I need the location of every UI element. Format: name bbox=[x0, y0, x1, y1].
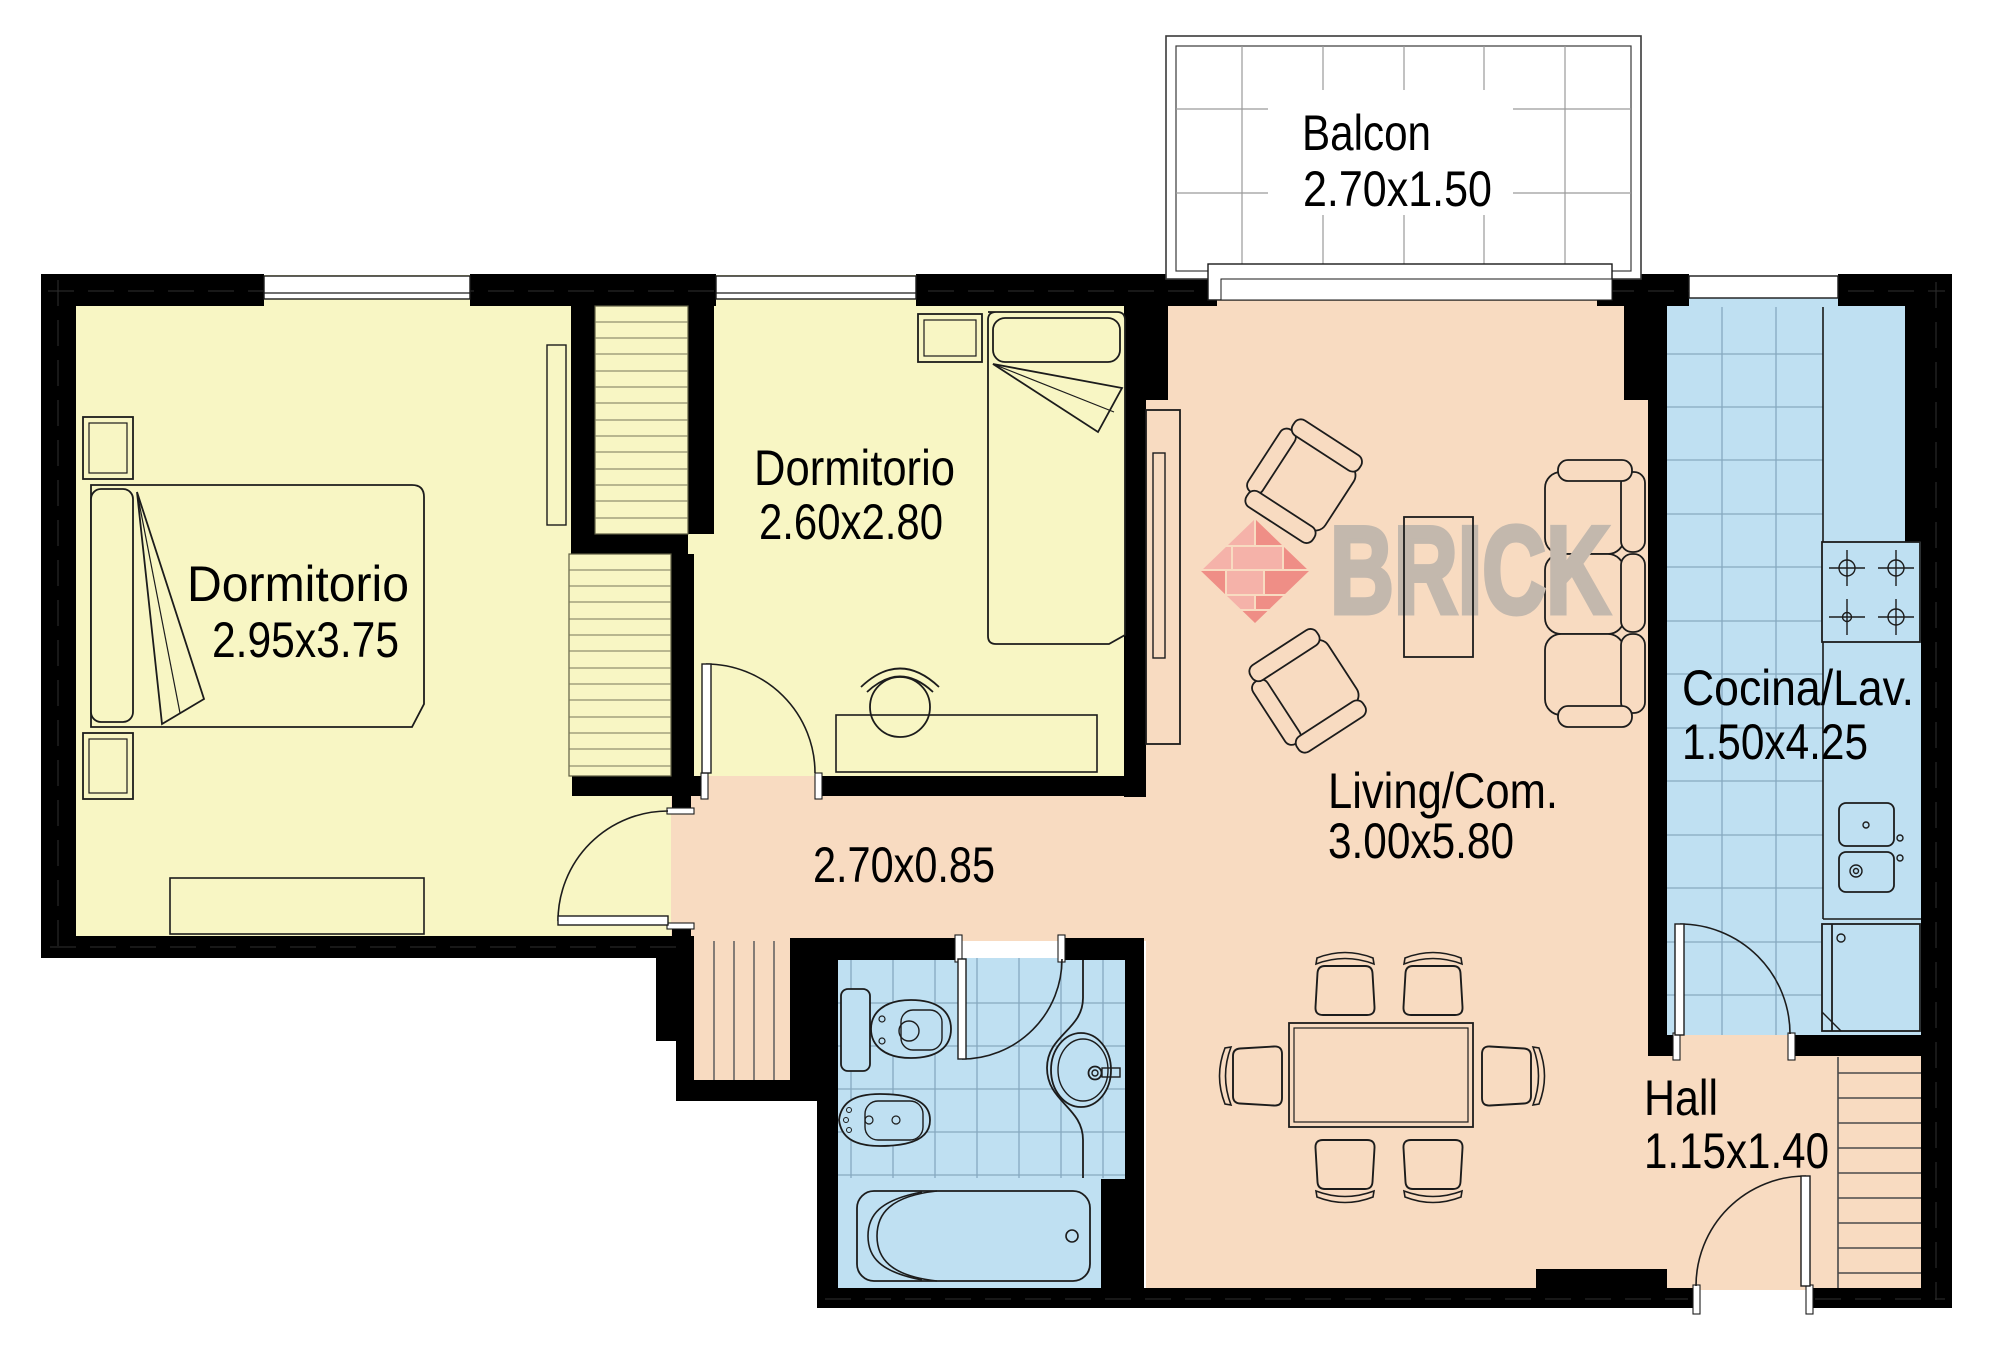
svg-text:Living/Com.: Living/Com. bbox=[1328, 763, 1558, 819]
svg-text:Cocina/Lav.: Cocina/Lav. bbox=[1682, 660, 1914, 716]
svg-text:2.95x3.75: 2.95x3.75 bbox=[212, 612, 399, 668]
svg-text:2.70x1.50: 2.70x1.50 bbox=[1303, 161, 1492, 217]
svg-text:Hall: Hall bbox=[1644, 1070, 1718, 1126]
svg-text:Dormitorio: Dormitorio bbox=[187, 556, 409, 612]
svg-text:Dormitorio: Dormitorio bbox=[754, 440, 955, 496]
svg-text:1.15x1.40: 1.15x1.40 bbox=[1644, 1123, 1829, 1179]
svg-text:BRICK: BRICK bbox=[1330, 502, 1610, 640]
svg-text:1.50x4.25: 1.50x4.25 bbox=[1682, 714, 1868, 770]
svg-text:Balcon: Balcon bbox=[1302, 105, 1431, 161]
svg-text:2.70x0.85: 2.70x0.85 bbox=[813, 837, 995, 893]
svg-text:3.00x5.80: 3.00x5.80 bbox=[1328, 813, 1514, 869]
svg-text:2.60x2.80: 2.60x2.80 bbox=[759, 494, 943, 550]
